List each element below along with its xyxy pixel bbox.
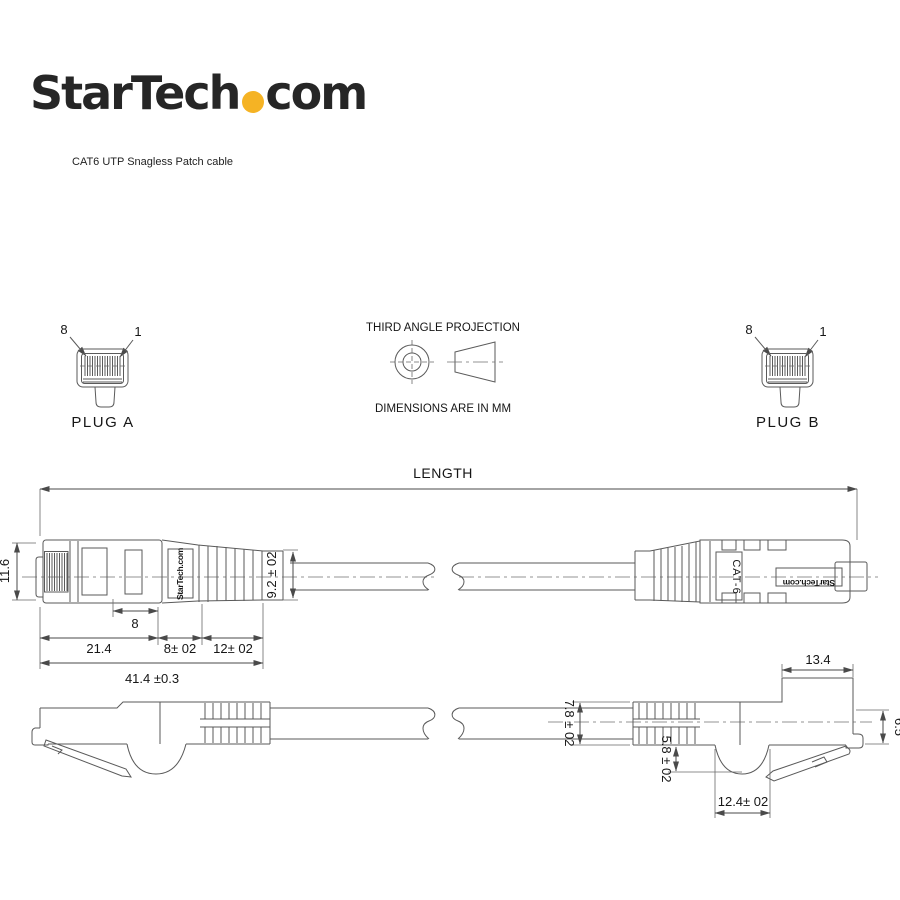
left-side-latch <box>44 740 131 777</box>
boot-height-ext-lines <box>283 550 298 600</box>
lower-ext-lines <box>40 599 263 669</box>
right-plug-tab-top-3 <box>768 540 786 550</box>
cable-break-left <box>423 563 435 590</box>
dim-cable-height: 7.8 ± 02 <box>562 700 577 747</box>
dim-front-length: 13.4 <box>805 652 830 667</box>
right-plug-tab-top-2 <box>744 540 760 550</box>
side-view-left-plug <box>32 702 270 777</box>
technical-drawing: 8 1 PLUG A 8 1 PLUG B <box>0 0 900 900</box>
plug-a-pin8-label: 8 <box>60 322 67 337</box>
dim-total-length: 41.4 ±0.3 <box>125 671 179 686</box>
side-cable-break-left <box>423 708 435 739</box>
left-side-boot-outline <box>200 702 270 744</box>
plug-a-caption: PLUG A <box>71 414 134 431</box>
right-plug-brand-text: StarTech.com <box>782 578 835 588</box>
right-plug-tab-top-1 <box>722 540 736 550</box>
dim-nose-height: 6.5 <box>892 718 900 736</box>
dim-boot-height: 9.2 ± 02 <box>264 552 279 599</box>
side-view-right-plug <box>548 678 872 781</box>
dim-pin-section: 8 <box>131 616 138 631</box>
dim-body-length: 21.4 <box>86 641 111 656</box>
nose-height-ext-lines <box>856 710 889 744</box>
cable-break-right <box>452 563 464 590</box>
plug-a-pin-base <box>83 379 122 382</box>
side-view-cable <box>270 708 633 739</box>
plug-b-boot-tail <box>780 387 800 407</box>
side-view-dimensions: 13.4 7.8 ± 02 5.8 ± 02 12.4± 02 6.5 <box>562 652 900 818</box>
cable-edges-side-view <box>270 708 633 739</box>
units-note: DIMENSIONS ARE IN MM <box>375 403 511 415</box>
dim-latch-depth: 5.8 ± 02 <box>659 736 674 783</box>
cat6-label: CAT-6 <box>730 559 742 594</box>
projection-title: THIRD ANGLE PROJECTION <box>366 322 520 334</box>
right-plug-tab-bottom-3 <box>768 593 786 603</box>
length-extension-lines <box>40 489 857 540</box>
dim-front-height: 11.6 <box>0 559 12 583</box>
left-plug-window-1 <box>82 548 107 595</box>
left-plug-brand-text: StarTech.com <box>175 547 185 600</box>
plug-a-front-view: 8 1 PLUG A <box>60 322 141 431</box>
top-view-cable <box>290 563 635 590</box>
dim-mid-length: 8± 02 <box>164 641 196 656</box>
right-side-boot-hump <box>715 745 769 774</box>
plug-b-front-view: 8 1 PLUG B <box>745 322 826 431</box>
plug-b-pin8-label: 8 <box>745 322 752 337</box>
third-angle-projection-symbol: THIRD ANGLE PROJECTION DIMENSIONS ARE IN… <box>366 322 520 415</box>
length-label: LENGTH <box>413 465 473 481</box>
left-plug-body <box>43 540 162 603</box>
top-view-right-plug: CAT-6 StarTech.com <box>635 540 867 603</box>
right-side-latch-pivot <box>846 734 863 748</box>
left-plug-boot-ribs <box>199 545 262 602</box>
dim-boot-length: 12± 02 <box>213 641 253 656</box>
dim-hump-width: 12.4± 02 <box>718 794 769 809</box>
right-side-latch <box>766 746 850 781</box>
plug-a-boot-tail <box>95 387 115 407</box>
left-side-boot-hump <box>127 744 186 774</box>
right-side-body-outline <box>700 678 853 745</box>
right-plug-boot-ribs <box>654 542 696 602</box>
side-cable-break-right <box>452 708 464 739</box>
left-side-body-outline <box>40 702 200 744</box>
right-side-boot-ribs-top <box>639 703 695 719</box>
plug-a-pin1-label: 1 <box>134 324 141 339</box>
plug-b-caption: PLUG B <box>756 414 820 431</box>
height-ext-lines <box>12 543 36 600</box>
left-plug-pin-hatch <box>47 553 67 591</box>
plug-b-pin1-label: 1 <box>819 324 826 339</box>
right-side-latch-notch <box>812 757 827 767</box>
drawing-sheet: StarTech com CAT6 UTP Snagless Patch cab… <box>0 0 900 900</box>
left-side-boot-ribs-bottom <box>205 727 261 743</box>
left-side-boot-ribs-top <box>205 703 261 719</box>
plug-b-pin-base <box>768 379 807 382</box>
left-plug-collar-lines <box>70 541 78 602</box>
right-plug-nose-block <box>835 562 867 591</box>
length-dimension: LENGTH <box>40 465 857 540</box>
top-view-left-plug: StarTech.com <box>36 540 283 603</box>
left-plug-window-2 <box>125 550 142 594</box>
projection-crosshair <box>390 340 434 384</box>
right-plug-tab-bottom-2 <box>744 593 760 603</box>
